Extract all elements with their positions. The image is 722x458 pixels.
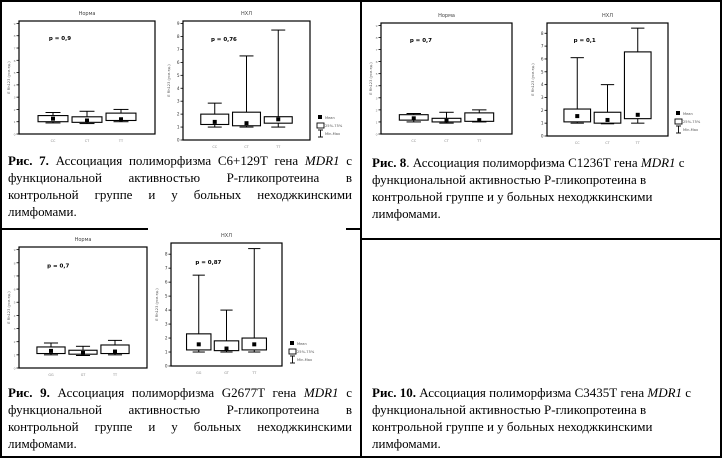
boxplot-fig7-norma: НормаЕ Rh123 (усл.ед.)p = 0,90123456789С… bbox=[6, 6, 161, 148]
svg-text:Min-Max: Min-Max bbox=[325, 132, 341, 136]
svg-text:Е Rh123 (усл.ед.): Е Rh123 (усл.ед.) bbox=[7, 61, 11, 94]
svg-text:0: 0 bbox=[14, 133, 16, 137]
svg-text:4: 4 bbox=[541, 82, 544, 87]
svg-text:7: 7 bbox=[14, 274, 16, 278]
svg-text:Е Rh123 (усл.ед.): Е Rh123 (усл.ед.) bbox=[7, 291, 11, 324]
svg-text:2: 2 bbox=[14, 108, 16, 112]
svg-text:2: 2 bbox=[541, 108, 544, 113]
figure9-gene-name: MDR1 bbox=[304, 385, 339, 400]
boxplot-fig8-nhl: НХЛЕ Rh123 (усл.ед.)p = 0,1012345678СССТ… bbox=[530, 8, 718, 150]
svg-text:0: 0 bbox=[541, 134, 544, 139]
svg-text:1: 1 bbox=[14, 353, 16, 357]
svg-text:GG: GG bbox=[48, 373, 54, 377]
svg-text:ТТ: ТТ bbox=[275, 145, 281, 149]
svg-text:6: 6 bbox=[376, 60, 378, 64]
svg-text:6: 6 bbox=[541, 56, 544, 61]
figure10-caption: Рис. 10. Ассоциация полиморфизма С3435Т … bbox=[372, 384, 696, 453]
svg-text:1: 1 bbox=[376, 120, 378, 124]
svg-text:6: 6 bbox=[165, 280, 168, 285]
svg-text:Mean: Mean bbox=[683, 112, 693, 116]
svg-text:p = 0,1: p = 0,1 bbox=[574, 38, 596, 44]
figure9-text-before-gene: Ассоциация полиморфизма G2677T гена bbox=[50, 385, 304, 400]
figure8-gene-name: MDR1 bbox=[641, 155, 676, 170]
svg-text:6: 6 bbox=[14, 288, 16, 292]
svg-text:Min-Max: Min-Max bbox=[297, 358, 313, 362]
figure10-text-before-gene: Ассоциация полиморфизма С3435Т гена bbox=[416, 385, 647, 400]
svg-text:9: 9 bbox=[14, 22, 16, 26]
boxplot-fig7-nhl: НХЛЕ Rh123 (усл.ед.)p = 0,760123456789СС… bbox=[166, 6, 360, 154]
svg-text:p = 0,9: p = 0,9 bbox=[49, 36, 71, 42]
svg-text:2: 2 bbox=[165, 336, 168, 341]
svg-text:Е Rh123 (усл.ед.): Е Rh123 (усл.ед.) bbox=[531, 63, 535, 96]
svg-text:7: 7 bbox=[541, 44, 544, 49]
svg-text:5: 5 bbox=[14, 71, 16, 75]
svg-text:3: 3 bbox=[14, 96, 16, 100]
figure8-text-before-gene: . Ассоциация полиморфизма С1236Т гена bbox=[406, 155, 641, 170]
svg-text:0: 0 bbox=[165, 364, 168, 369]
svg-text:НХЛ: НХЛ bbox=[241, 11, 252, 17]
svg-text:НХЛ: НХЛ bbox=[221, 233, 232, 239]
svg-text:25%-75%: 25%-75% bbox=[325, 124, 343, 128]
svg-text:7: 7 bbox=[165, 266, 168, 271]
svg-text:TT: TT bbox=[112, 373, 118, 377]
svg-text:8: 8 bbox=[376, 36, 378, 40]
svg-text:1: 1 bbox=[177, 125, 180, 130]
svg-text:GT: GT bbox=[81, 373, 87, 377]
paper-page: НормаЕ Rh123 (усл.ед.)p = 0,90123456789С… bbox=[0, 0, 722, 458]
svg-text:Норма: Норма bbox=[79, 11, 96, 17]
svg-text:6: 6 bbox=[177, 60, 180, 65]
svg-text:СТ: СТ bbox=[605, 141, 610, 145]
svg-text:ТТ: ТТ bbox=[118, 139, 124, 143]
svg-text:1: 1 bbox=[14, 120, 16, 124]
svg-text:3: 3 bbox=[177, 99, 180, 104]
svg-text:ТТ: ТТ bbox=[635, 141, 641, 145]
svg-text:p = 0,7: p = 0,7 bbox=[410, 38, 432, 44]
figure9-caption: Рис. 9. Ассоциация полиморфизма G2677T г… bbox=[8, 384, 352, 453]
figure7-text-before-gene: Ассоциация полиморфизма С6+129Т гена bbox=[49, 153, 305, 168]
svg-text:4: 4 bbox=[14, 83, 16, 87]
svg-text:5: 5 bbox=[14, 301, 16, 305]
boxplot-fig9-norma: НормаЕ Rh123 (усл.ед.)p = 0,70123456789G… bbox=[6, 232, 153, 382]
svg-text:8: 8 bbox=[177, 34, 180, 39]
boxplot-fig8-norma: НормаЕ Rh123 (усл.ед.)p = 0,70123456789С… bbox=[368, 8, 518, 148]
figure7-gene-name: MDR1 bbox=[305, 153, 340, 168]
svg-text:25%-75%: 25%-75% bbox=[683, 120, 701, 124]
table-divider-right bbox=[362, 238, 720, 240]
svg-text:Норма: Норма bbox=[75, 237, 92, 243]
svg-text:7: 7 bbox=[376, 48, 378, 52]
svg-text:p = 0,76: p = 0,76 bbox=[211, 37, 237, 43]
svg-text:СС: СС bbox=[411, 139, 416, 143]
svg-text:Min-Max: Min-Max bbox=[683, 128, 699, 132]
svg-text:СТ: СТ bbox=[85, 139, 90, 143]
svg-text:GT: GT bbox=[224, 371, 230, 375]
svg-text:СТ: СТ bbox=[444, 139, 449, 143]
figure10-label: Рис. 10. bbox=[372, 385, 416, 400]
svg-text:СС: СС bbox=[51, 139, 56, 143]
boxplot-fig9-nhl: НХЛЕ Rh123 (усл.ед.)p = 0,87012345678GGG… bbox=[154, 228, 332, 380]
svg-text:8: 8 bbox=[165, 252, 168, 257]
svg-text:Е Rh123 (усл.ед.): Е Rh123 (усл.ед.) bbox=[369, 62, 373, 95]
svg-text:4: 4 bbox=[177, 86, 180, 91]
table-divider-left-b bbox=[346, 228, 360, 230]
svg-text:НХЛ: НХЛ bbox=[602, 13, 613, 19]
svg-text:25%-75%: 25%-75% bbox=[297, 350, 315, 354]
svg-text:2: 2 bbox=[177, 112, 180, 117]
svg-text:5: 5 bbox=[376, 72, 378, 76]
svg-text:4: 4 bbox=[376, 84, 378, 88]
svg-text:9: 9 bbox=[177, 21, 180, 26]
figure7-label: Рис. 7. bbox=[8, 153, 49, 168]
svg-text:7: 7 bbox=[177, 47, 180, 52]
svg-text:Е Rh123 (усл.ед.): Е Rh123 (усл.ед.) bbox=[167, 64, 171, 97]
svg-text:0: 0 bbox=[177, 138, 180, 143]
svg-text:3: 3 bbox=[14, 327, 16, 331]
svg-text:GG: GG bbox=[196, 371, 202, 375]
svg-text:8: 8 bbox=[14, 261, 16, 265]
svg-text:0: 0 bbox=[376, 133, 378, 137]
svg-text:7: 7 bbox=[14, 47, 16, 51]
svg-text:ТТ: ТТ bbox=[476, 139, 482, 143]
svg-text:2: 2 bbox=[14, 340, 16, 344]
svg-text:TT: TT bbox=[251, 371, 257, 375]
table-divider-left-a bbox=[2, 228, 148, 230]
figure7-caption: Рис. 7. Ассоциация полиморфизма С6+129Т … bbox=[8, 152, 352, 221]
svg-text:8: 8 bbox=[541, 31, 544, 36]
table-divider-vertical bbox=[360, 2, 362, 456]
svg-text:1: 1 bbox=[541, 121, 544, 126]
svg-text:6: 6 bbox=[14, 59, 16, 63]
svg-text:1: 1 bbox=[165, 350, 168, 355]
svg-text:СС: СС bbox=[575, 141, 580, 145]
svg-text:Mean: Mean bbox=[325, 116, 335, 120]
svg-text:9: 9 bbox=[14, 248, 16, 252]
figure10-gene-name: MDR1 bbox=[647, 385, 682, 400]
svg-text:Е Rh123 (усл.ед.): Е Rh123 (усл.ед.) bbox=[155, 288, 159, 321]
figure9-label: Рис. 9. bbox=[8, 385, 50, 400]
figure8-caption: Рис. 8. Ассоциация полиморфизма С1236Т г… bbox=[372, 154, 688, 223]
svg-text:8: 8 bbox=[14, 34, 16, 38]
svg-text:5: 5 bbox=[165, 294, 168, 299]
svg-text:p = 0,7: p = 0,7 bbox=[47, 264, 69, 270]
svg-text:Норма: Норма bbox=[438, 13, 455, 19]
svg-text:3: 3 bbox=[165, 322, 168, 327]
svg-text:СТ: СТ bbox=[244, 145, 249, 149]
svg-text:9: 9 bbox=[376, 24, 378, 28]
svg-text:СС: СС bbox=[212, 145, 217, 149]
svg-text:2: 2 bbox=[376, 108, 378, 112]
svg-text:4: 4 bbox=[14, 314, 16, 318]
svg-text:0: 0 bbox=[14, 367, 16, 371]
svg-text:Mean: Mean bbox=[297, 342, 307, 346]
figure8-label: Рис. 8 bbox=[372, 155, 406, 170]
svg-text:3: 3 bbox=[376, 96, 378, 100]
svg-text:p = 0,87: p = 0,87 bbox=[195, 260, 221, 266]
svg-text:5: 5 bbox=[541, 69, 544, 74]
svg-text:4: 4 bbox=[165, 308, 168, 313]
svg-text:5: 5 bbox=[177, 73, 180, 78]
svg-text:3: 3 bbox=[541, 95, 544, 100]
